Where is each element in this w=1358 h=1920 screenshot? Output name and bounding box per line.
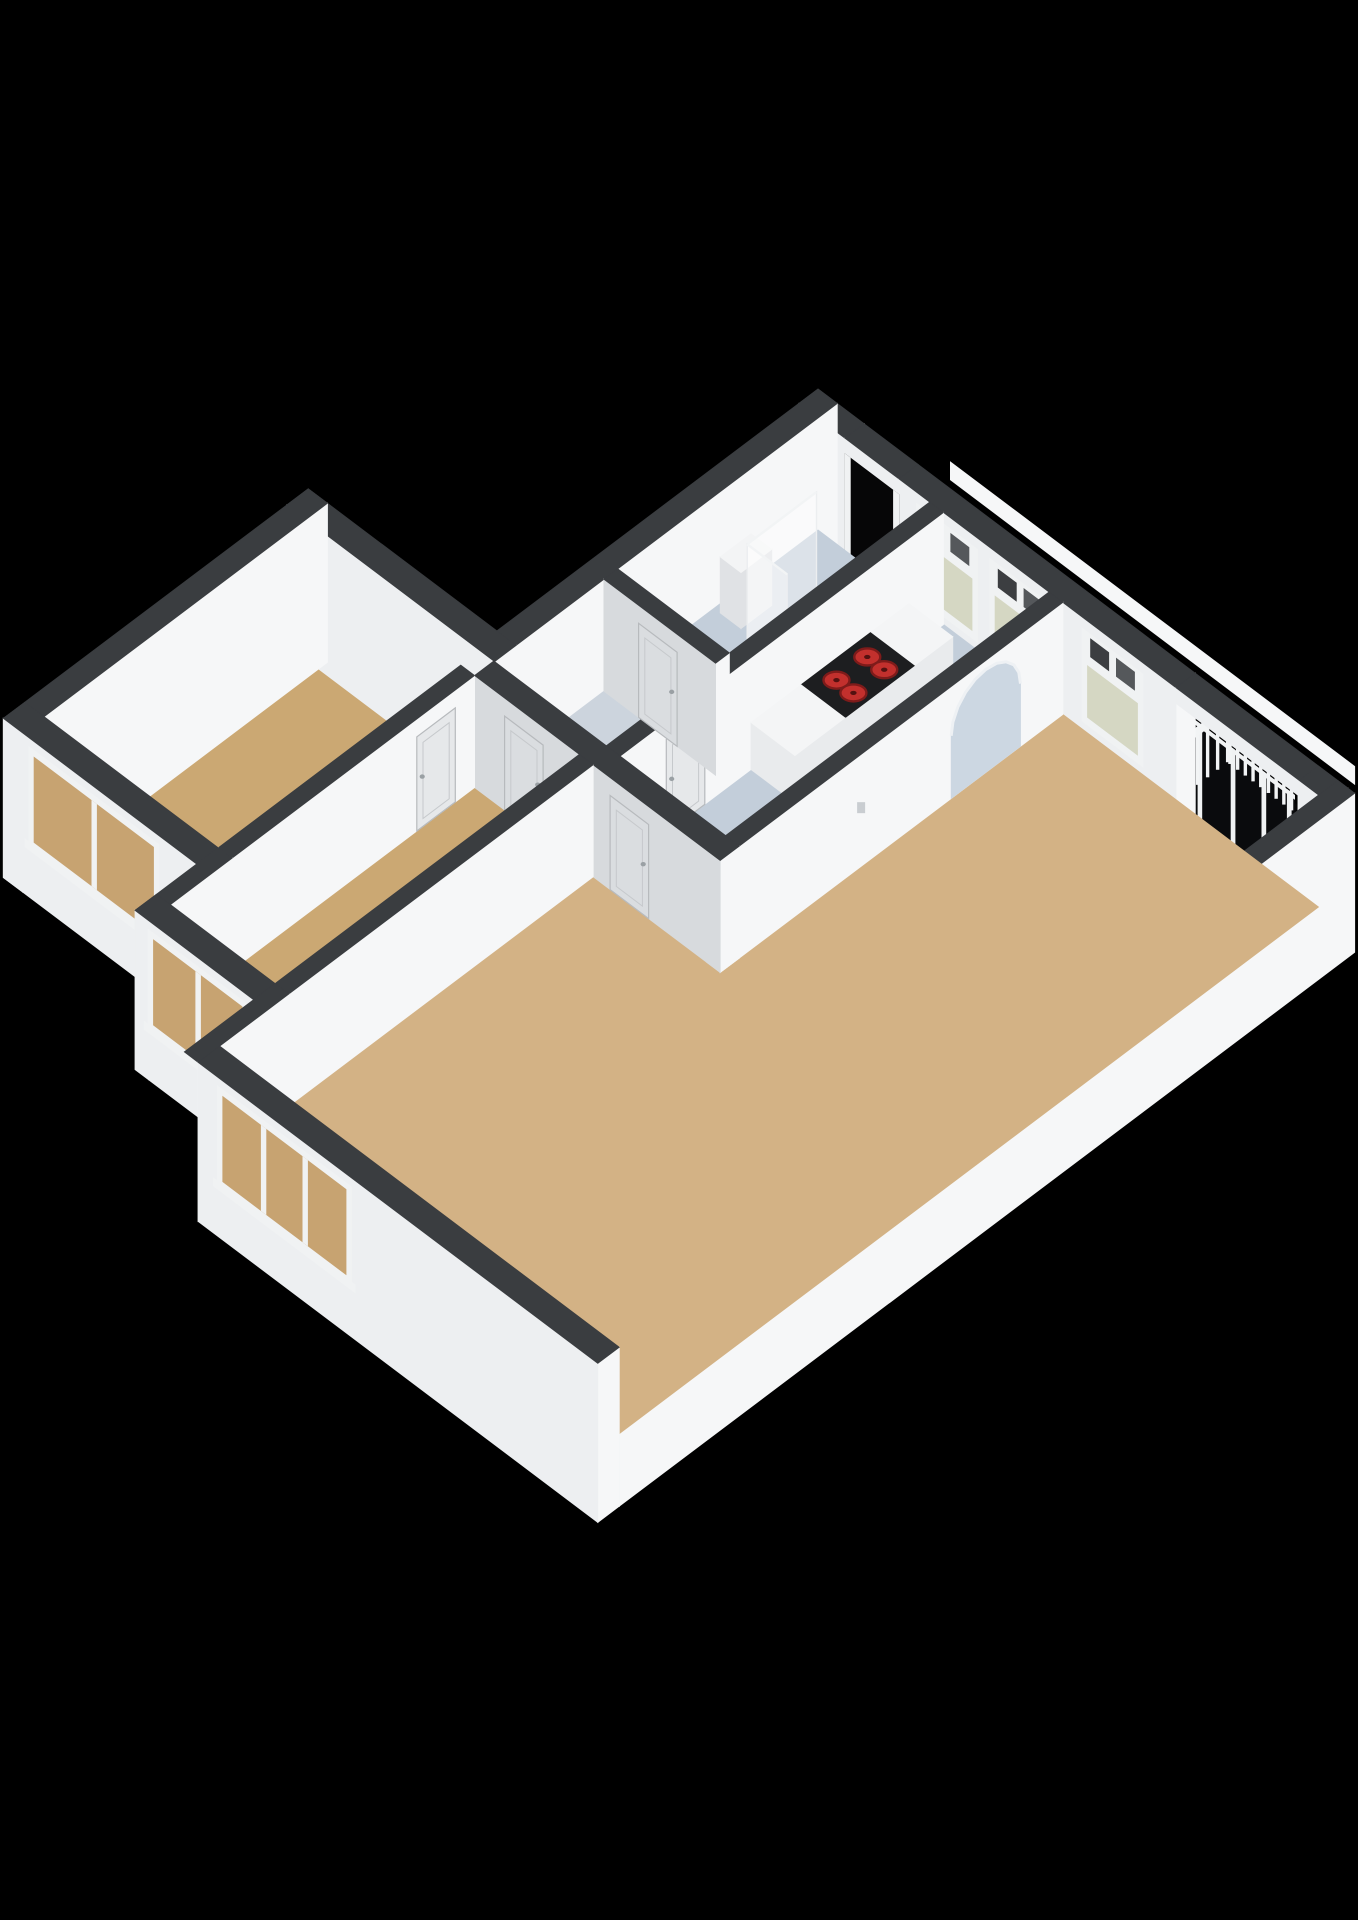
wall-bathroom-hall-door-handle: [669, 690, 674, 694]
wall-bathroom-kitchen-door-handle: [669, 777, 674, 781]
wall-living-sw-facade-window-mullion-1: [303, 1157, 308, 1246]
wall-wing-sw-facade-window-mullion-0: [92, 801, 97, 890]
wall-bathroom-hall-face-se: [716, 653, 730, 775]
stove-burner-center-4: [850, 691, 856, 695]
wall-living-sw-facade-window-mullion-0: [261, 1126, 266, 1215]
wall-living-sw-facade-face-se: [598, 1347, 620, 1522]
floorplan-3d: [0, 0, 1358, 1920]
wall-hall-bedrooms-door-handle: [641, 862, 646, 866]
thermostat: [857, 802, 865, 813]
stove-burner-center-1: [864, 655, 870, 659]
stove-burner-center-3: [833, 678, 839, 682]
entrance-door-jamb-left: [845, 454, 850, 554]
wall-hall-bedrooms-face-se: [720, 846, 739, 973]
floorplan-canvas: [0, 0, 1358, 1920]
stove-burner-center-2: [881, 668, 887, 672]
wall-bedroom-divider-door-handle: [420, 774, 425, 778]
balcony-glazing-frame-2: [1231, 747, 1235, 851]
